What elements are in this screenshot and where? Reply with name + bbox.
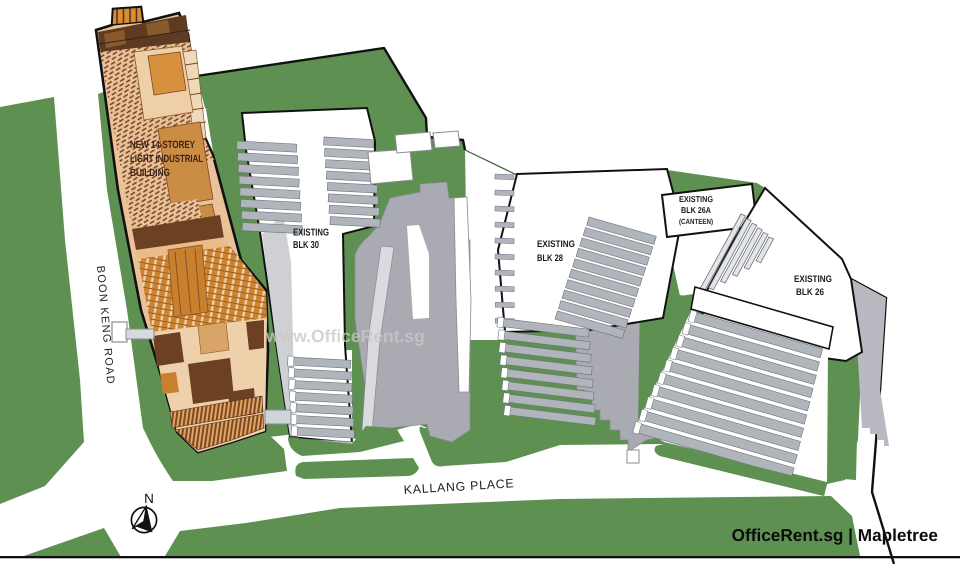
svg-text:BLK 30: BLK 30 — [293, 240, 319, 251]
svg-text:N: N — [144, 491, 154, 506]
svg-text:BLK 26A: BLK 26A — [681, 205, 711, 215]
svg-text:www.OfficeRent.sg: www.OfficeRent.sg — [265, 326, 425, 346]
svg-text:EXISTING: EXISTING — [679, 194, 713, 204]
svg-text:BUILDING: BUILDING — [130, 167, 170, 179]
svg-text:BLK 28: BLK 28 — [537, 253, 563, 264]
svg-text:NEW 14-STOREY: NEW 14-STOREY — [130, 139, 195, 151]
svg-text:EXISTING: EXISTING — [794, 274, 832, 285]
svg-text:LIGHT INDUSTRIAL: LIGHT INDUSTRIAL — [130, 153, 203, 165]
svg-text:BLK 26: BLK 26 — [796, 287, 824, 298]
svg-text:EXISTING: EXISTING — [537, 239, 575, 250]
svg-text:EXISTING: EXISTING — [293, 228, 329, 239]
svg-text:OfficeRent.sg | Mapletree: OfficeRent.sg | Mapletree — [732, 525, 938, 545]
svg-text:(CANTEEN): (CANTEEN) — [679, 217, 713, 226]
svg-text:KALLANG PLACE: KALLANG PLACE — [403, 476, 515, 497]
